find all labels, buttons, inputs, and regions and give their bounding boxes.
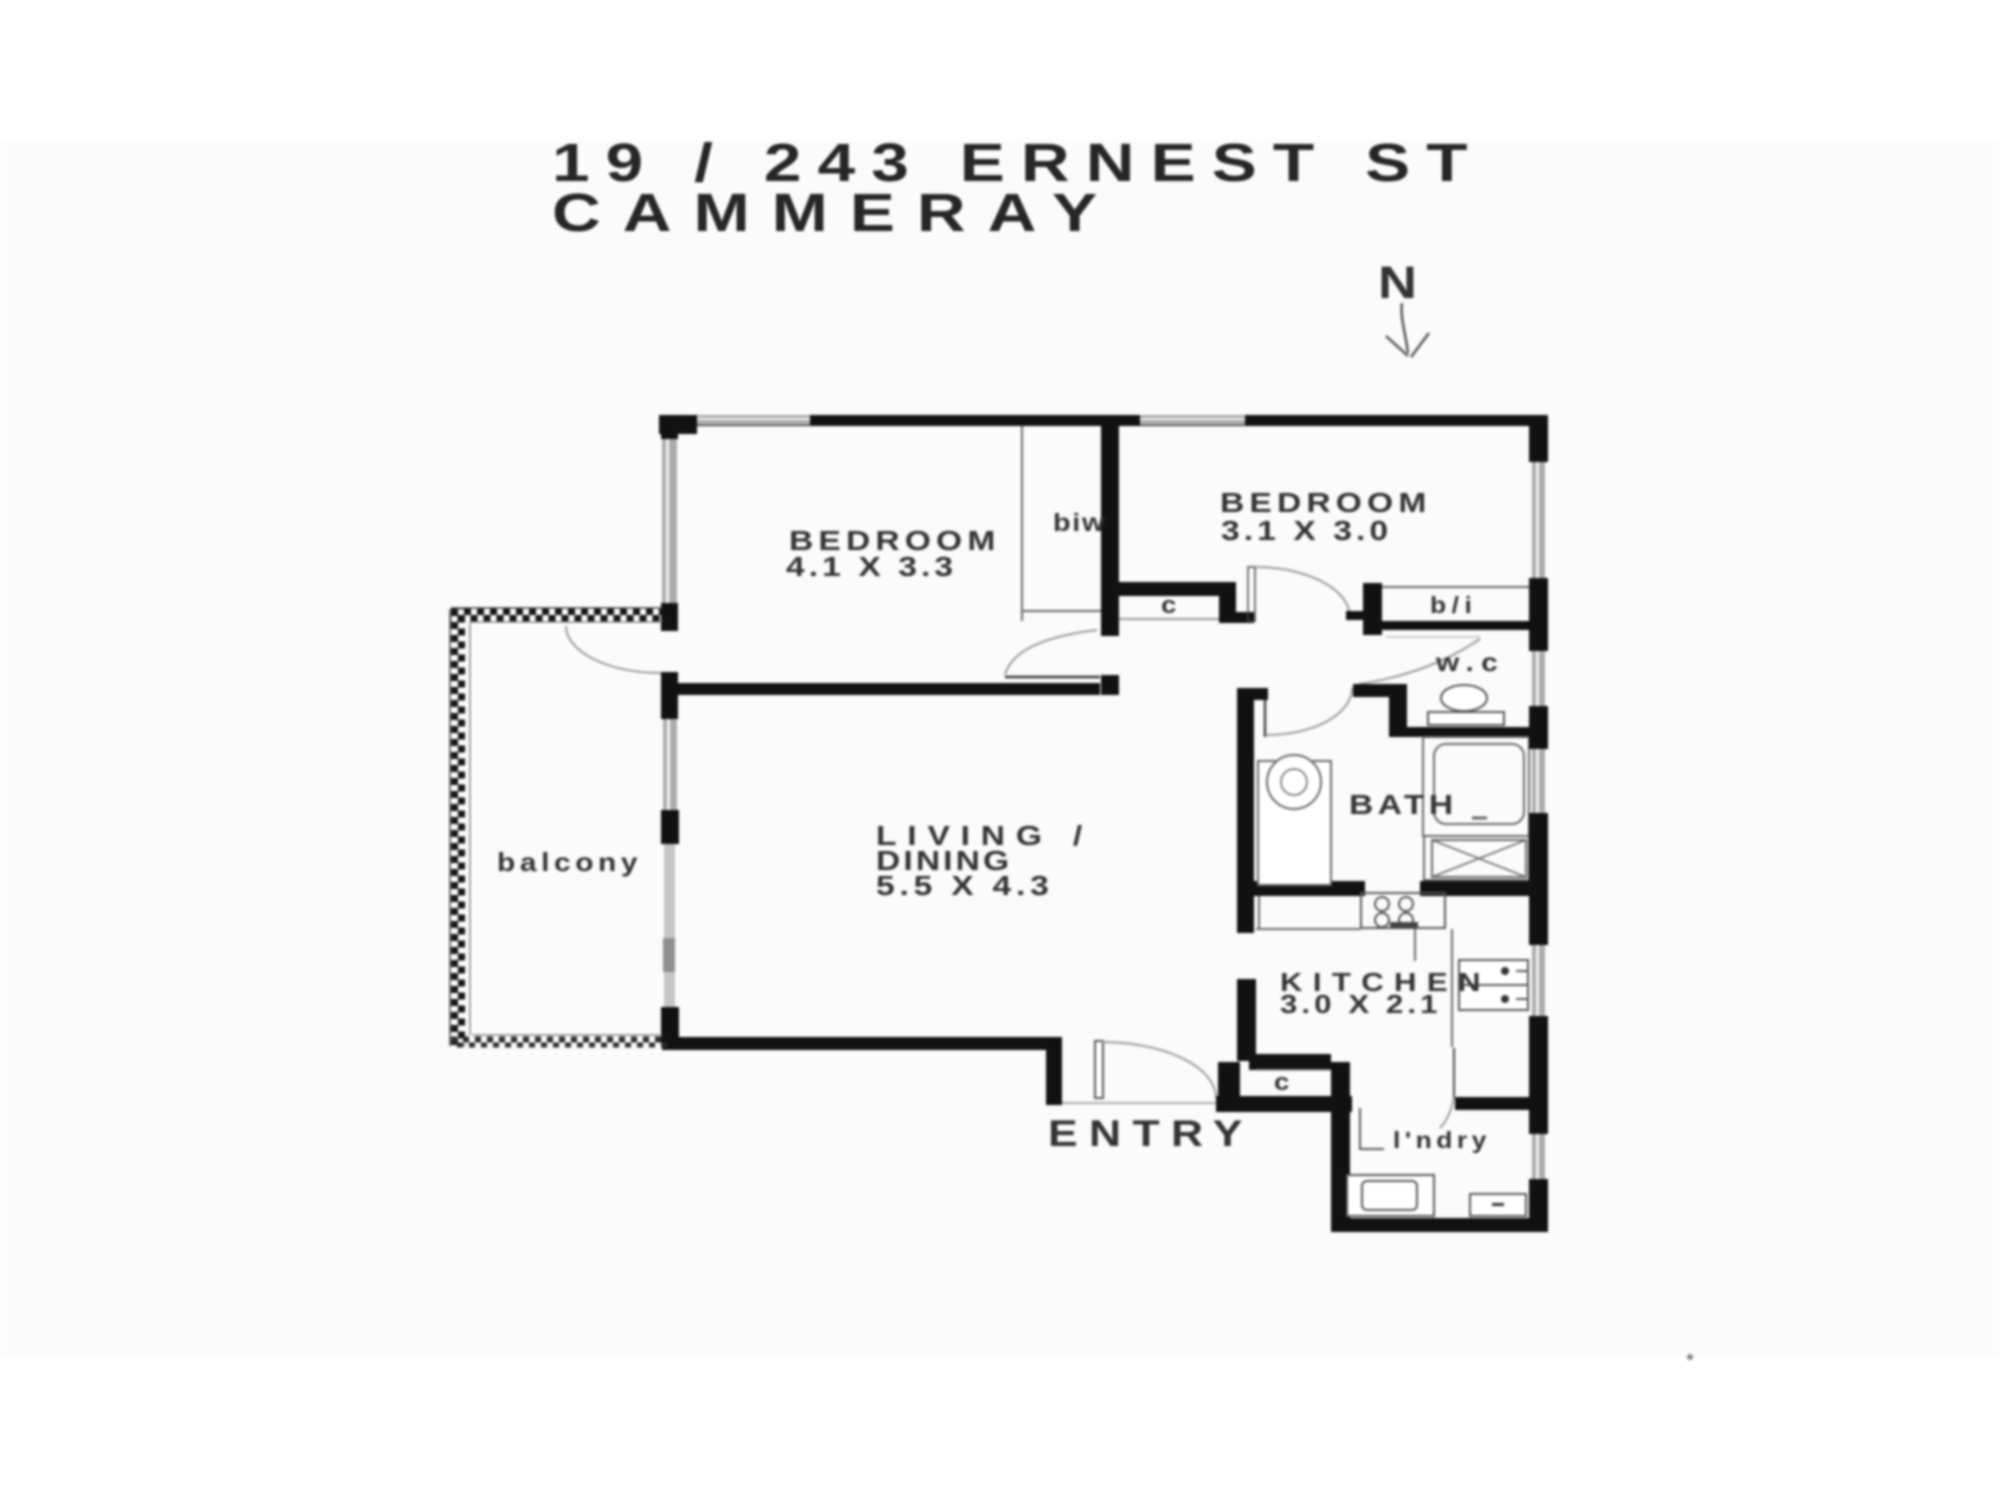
svg-text:3.1 X 3.0: 3.1 X 3.0 (1221, 515, 1392, 547)
svg-text:balcony: balcony (497, 848, 642, 877)
svg-text:ENTRY: ENTRY (1048, 1113, 1254, 1155)
svg-text:c: c (1274, 1070, 1289, 1096)
svg-text:biw: biw (1053, 509, 1106, 537)
svg-text:CAMMERAY: CAMMERAY (552, 182, 1119, 242)
svg-text:N: N (1378, 257, 1417, 308)
svg-text:c: c (1161, 593, 1176, 619)
svg-text:w.c: w.c (1435, 648, 1505, 677)
svg-text:l'ndry: l'ndry (1393, 1129, 1491, 1154)
svg-text:4.1 X 3.3: 4.1 X 3.3 (786, 551, 957, 583)
svg-text:3.0 X 2.1: 3.0 X 2.1 (1280, 990, 1442, 1019)
svg-text:b/i: b/i (1430, 594, 1477, 619)
svg-text:BEDROOM: BEDROOM (1220, 487, 1431, 519)
svg-text:5.5 X 4.3: 5.5 X 4.3 (876, 870, 1054, 902)
svg-text:BATH: BATH (1349, 789, 1458, 821)
